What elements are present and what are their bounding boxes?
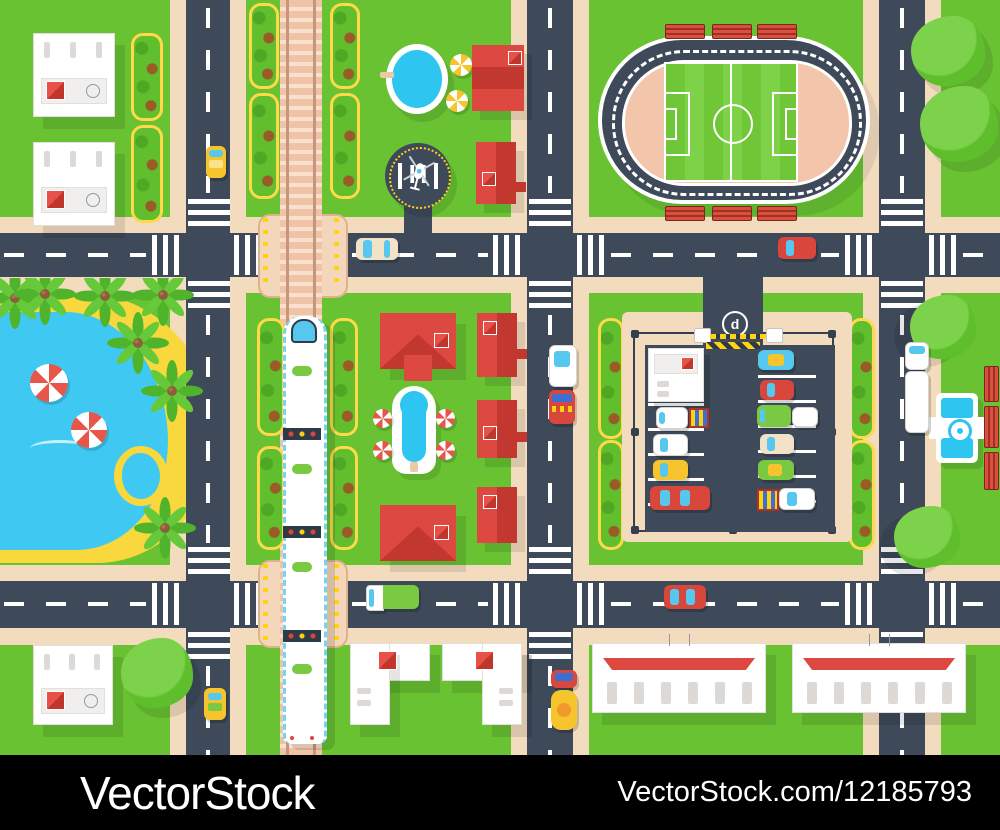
apartment-building (792, 643, 966, 713)
truck-trailer (792, 407, 818, 427)
football-pitch (664, 62, 798, 182)
train-windshield (291, 319, 317, 343)
crosswalk (529, 281, 571, 311)
parked-taxi (758, 350, 794, 370)
parked-car-white (653, 434, 688, 456)
antenna (669, 634, 670, 646)
vectorstock-id-text: VectorStock.com/12185793 (617, 776, 972, 809)
hedge (598, 440, 624, 550)
road-dash (900, 8, 904, 193)
bench (757, 24, 797, 39)
parked-car-beige (760, 434, 794, 454)
city-map-illustration: d (0, 0, 1000, 830)
umbrella-icon (373, 409, 392, 428)
road-dash (963, 253, 1000, 257)
crosswalk (881, 199, 923, 229)
tree (894, 506, 960, 568)
roof-fan (84, 694, 98, 708)
parked-limo-red (650, 486, 710, 510)
antenna (889, 634, 890, 646)
roof-ridge (803, 658, 955, 670)
bench (665, 24, 705, 39)
train-roof-vent (292, 664, 312, 674)
building-white (33, 645, 113, 725)
crosswalk (577, 583, 607, 625)
hedge (249, 3, 279, 89)
palm-trees-layer (0, 278, 240, 578)
hazard-stripe (706, 342, 760, 349)
goal-box-right (785, 108, 796, 140)
hedge (131, 33, 163, 121)
crosswalk (529, 547, 571, 577)
palm-tree-icon (124, 487, 206, 569)
umbrella-icon (436, 441, 455, 460)
crosswalk (529, 199, 571, 229)
bench (984, 452, 999, 490)
road-dash (611, 602, 839, 606)
umbrella-icon (446, 90, 468, 112)
stadium (598, 36, 870, 204)
crosswalk (577, 235, 607, 275)
fence-post (631, 526, 639, 534)
bench (712, 206, 752, 221)
helipad: H (385, 143, 451, 209)
fountain (936, 393, 978, 463)
road-dash (548, 8, 552, 193)
hedge (598, 318, 624, 439)
skylight (434, 525, 449, 540)
pool-water (402, 410, 426, 462)
train-roof-vent (292, 562, 312, 572)
truck-colorful (549, 390, 575, 424)
hedge (330, 318, 358, 436)
gate-post (766, 328, 783, 343)
hedge (330, 3, 360, 89)
roof-fan (86, 193, 100, 207)
pickup-cab (366, 585, 384, 611)
crosswalk (845, 583, 875, 625)
road-dash (900, 315, 904, 543)
vectorstock-logo-text: VectorStock (80, 766, 314, 820)
bench (712, 24, 752, 39)
skylight (46, 691, 65, 710)
skylight-pyramid (378, 651, 397, 670)
crosswalk (188, 632, 230, 662)
bench (757, 206, 797, 221)
skylight (483, 426, 497, 440)
umbrella-icon (450, 54, 472, 76)
beach-umbrella-icon (30, 364, 68, 402)
cargo-crate (689, 408, 709, 428)
roof-vent (357, 700, 371, 706)
stall-line (758, 400, 816, 403)
building-white (33, 33, 115, 117)
pitch-center-circle (713, 104, 753, 144)
parking-sign-letter: d (724, 313, 746, 335)
kiosk (757, 489, 779, 511)
fountain-center (948, 419, 972, 443)
house-red-roof (477, 487, 517, 543)
train-coupling (283, 428, 321, 440)
diving-board (380, 72, 394, 78)
parking-office-building (648, 348, 704, 402)
crosswalk (152, 583, 182, 625)
hedge (330, 93, 360, 199)
hedge (257, 318, 285, 436)
taxi (204, 688, 226, 720)
parked-car-green (758, 460, 794, 480)
train-coupling (283, 526, 321, 538)
tree (920, 86, 998, 162)
parked-car-white (779, 488, 815, 510)
taxi (206, 146, 226, 178)
parked-van (656, 407, 688, 429)
train-coupling (283, 630, 321, 642)
hedge (330, 446, 358, 550)
house-porch (515, 432, 527, 442)
tanker-cab (551, 670, 577, 688)
truck-cab-white (905, 342, 929, 370)
train-roof-vent (292, 464, 312, 474)
crosswalk (493, 235, 523, 275)
house-porch (515, 349, 527, 359)
roof-vent (499, 700, 513, 706)
parked-car-red (760, 380, 794, 400)
crosswalk (845, 235, 875, 275)
watermark-bar: VectorStock VectorStock.com/12185793 (0, 755, 1000, 830)
gate-barrier (710, 334, 766, 339)
skylight-pyramid (475, 651, 494, 670)
skylight (508, 51, 522, 65)
hedge (849, 440, 875, 550)
platform-lights (334, 564, 339, 640)
swimming-pool (386, 44, 448, 114)
bench (984, 406, 999, 448)
antenna (869, 634, 870, 646)
roof-vent (657, 381, 669, 387)
platform-lights (263, 218, 268, 290)
office-skylight (681, 357, 694, 370)
gate-post (694, 328, 711, 343)
goal-box-left (666, 108, 677, 140)
road-dash (4, 253, 146, 257)
tanker-tank (551, 690, 577, 730)
fountain-water (941, 398, 973, 418)
road-dash (4, 602, 146, 606)
hedge (249, 93, 279, 199)
pickup-bed-green (383, 585, 419, 609)
tree (911, 16, 985, 86)
antenna (689, 634, 690, 646)
skylight (483, 495, 497, 509)
diving-board (410, 462, 418, 472)
crosswalk (529, 632, 571, 662)
road-dash (963, 602, 1000, 606)
fountain-wing (929, 417, 938, 439)
fence-post (631, 428, 639, 436)
apartment-building (592, 643, 766, 713)
train-tail-light (310, 736, 314, 740)
skylight (46, 190, 65, 209)
bench (665, 206, 705, 221)
stall-line (648, 403, 704, 406)
roof-fan (86, 84, 100, 98)
umbrella-icon (373, 441, 392, 460)
skylight (46, 81, 65, 100)
house-red-roof (476, 142, 516, 204)
tree (121, 638, 193, 708)
hedge (849, 318, 875, 439)
car-red (664, 585, 706, 609)
parked-truck-green (757, 405, 791, 427)
roof-ridge (603, 658, 755, 670)
house-porch (514, 182, 526, 192)
crosswalk (152, 235, 182, 275)
stall-line (758, 375, 816, 378)
house-red-roof (472, 45, 524, 111)
crosswalk (493, 583, 523, 625)
roof-vent (657, 391, 669, 397)
train (283, 316, 327, 744)
skylight (434, 333, 449, 348)
hedge (257, 446, 285, 550)
fence-post (631, 330, 639, 338)
keyhole-pool (392, 386, 436, 474)
truck-trailer-white (905, 371, 929, 433)
roof-vent (357, 688, 371, 694)
skylight (482, 172, 496, 186)
crosswalk (929, 235, 959, 275)
platform-lights (334, 218, 339, 290)
parked-car-yellow (653, 460, 688, 480)
pool-water (392, 50, 442, 108)
house-red-roof-large (380, 313, 456, 369)
train-roof-vent (292, 366, 312, 376)
car-white (356, 238, 398, 260)
platform-lights (263, 564, 268, 640)
crosswalk (929, 583, 959, 625)
bench (984, 366, 999, 402)
car-red (778, 237, 816, 259)
skylight (483, 321, 497, 335)
fence-post (828, 330, 836, 338)
hedge (131, 125, 163, 223)
building-white (33, 142, 115, 226)
house-red-roof-large (380, 505, 456, 561)
van-white (549, 345, 577, 387)
umbrella-icon (436, 409, 455, 428)
house-red-roof (477, 313, 517, 377)
train-tail-light (290, 736, 294, 740)
roof-vent (499, 688, 513, 694)
crosswalk (188, 199, 230, 229)
beach-umbrella-icon (71, 412, 107, 448)
house-red-roof (477, 400, 517, 458)
